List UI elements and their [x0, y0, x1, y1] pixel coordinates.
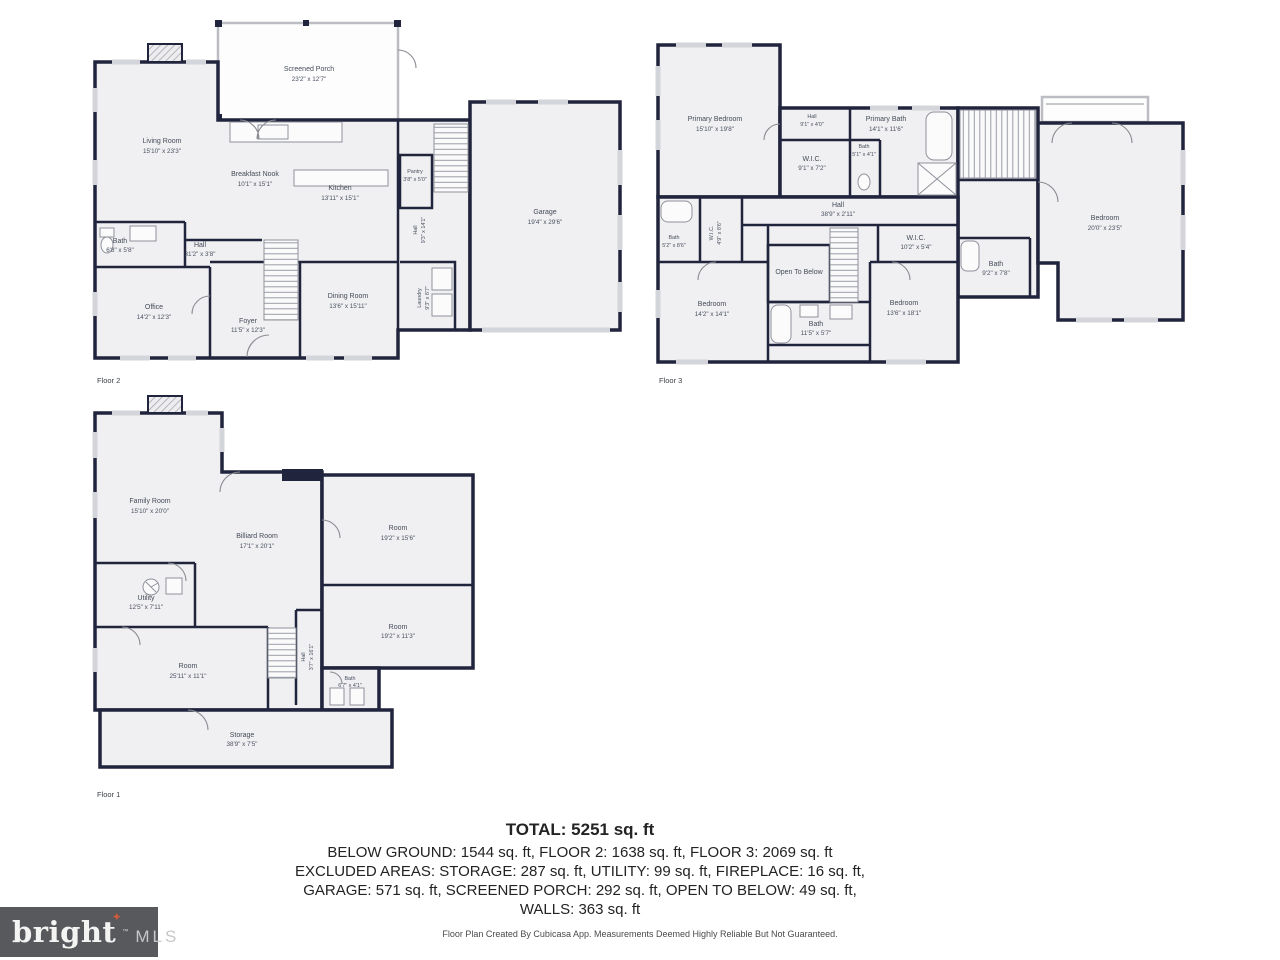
room-label-hall-floor1: Hall [301, 652, 307, 661]
room-dims-room-upper-right: 19'2" x 15'6" [381, 535, 416, 542]
room-label-utility: Utility [137, 595, 155, 602]
room-dims-pantry: 3'8" x 5'0" [403, 177, 427, 183]
sink-floor1 [350, 688, 364, 705]
room-label-bedroom-left: Bedroom [698, 301, 727, 308]
room-label-breakfast-nook: Breakfast Nook [231, 171, 279, 178]
room-label-bath-right: Bath [989, 261, 1004, 268]
logo-brand-text: bright✦ [12, 918, 116, 947]
room-label-hall-upper: Hall [807, 114, 816, 120]
room-dims-storage: 38'9" x 7'5" [226, 741, 257, 748]
room-label-living-room: Living Room [143, 138, 182, 145]
room-label-bedroom-middle: Bedroom [890, 300, 919, 307]
room-label-kitchen: Kitchen [328, 185, 351, 192]
wall-block [282, 469, 323, 481]
kitchen-island [294, 170, 388, 186]
floor2-label: Floor 2 [97, 376, 120, 385]
room-dims-bath-middle: 11'5" x 5'7" [801, 330, 832, 337]
room-label-bath-small: Bath [858, 144, 869, 150]
floorplan-canvas: Screened Porch 23'2" x 12'7" Living Room… [0, 0, 1280, 960]
garage-outline [470, 102, 620, 330]
room-label-primary-bath: Primary Bath [866, 116, 907, 123]
logo-trademark: ™ [122, 929, 128, 935]
floor1-plan: Family Room 15'10" x 20'0" Billiard Room… [95, 396, 473, 799]
room-dims-bath-floor1: 6'7" x 4'1" [338, 683, 362, 689]
room-dims-bath-left: 5'2" x 8'6" [662, 243, 686, 249]
room-label-wic-primary: W.I.C. [802, 156, 821, 163]
room-dims-hall-upper: 9'1" x 4'0" [800, 122, 824, 128]
room-label-family-room: Family Room [129, 498, 170, 505]
room-dims-hall-f2: 31'2" x 3'8" [184, 251, 215, 258]
floor1-label: Floor 1 [97, 790, 120, 799]
room-dims-kitchen: 13'11" x 15'1" [321, 195, 359, 202]
room-dims-utility: 12'5" x 7'11" [129, 604, 163, 611]
room-label-storage: Storage [230, 732, 255, 739]
room-dims-screened-porch: 23'2" x 12'7" [292, 76, 327, 83]
floorplan-sheet: Screened Porch 23'2" x 12'7" Living Room… [0, 0, 1280, 960]
room-label-wic-left: W.I.C. [709, 226, 715, 241]
floor2-plan: Screened Porch 23'2" x 12'7" Living Room… [95, 20, 620, 385]
stairs-upper [434, 124, 468, 192]
room-dims-bath-f2: 6'8" x 5'8" [106, 247, 134, 254]
room-label-wic-right: W.I.C. [906, 235, 925, 242]
room-dims-family-room: 15'10" x 20'0" [131, 508, 169, 515]
primary-tub [926, 112, 952, 160]
room-label-bath-middle: Bath [809, 321, 824, 328]
room-dims-bedroom-right: 20'0" x 23'5" [1088, 225, 1123, 232]
room-dims-wic-primary: 9'1" x 7'2" [798, 165, 826, 172]
room-label-foyer: Foyer [239, 318, 258, 325]
logo-mls-text: MLS [135, 927, 179, 947]
room-label-room-lower-right: Room [389, 624, 408, 631]
room-dims-bedroom-middle: 13'6" x 18'1" [887, 310, 922, 317]
vanity-bath-middle [830, 305, 852, 319]
tub-bath-right [961, 241, 979, 271]
washer [432, 268, 452, 290]
room-label-primary-bedroom: Primary Bedroom [688, 116, 743, 123]
room-label-room-upper-right: Room [389, 525, 408, 532]
room-dims-primary-bath: 14'1" x 11'6" [869, 126, 903, 133]
toilet-tank [100, 228, 114, 237]
room-dims-hall-side: 9'3" x 14'1" [421, 217, 427, 244]
fireplace [148, 44, 182, 62]
stairs-floor3 [960, 110, 1036, 178]
sink-bath-middle [800, 305, 818, 317]
room-label-hall-f2: Hall [194, 242, 207, 249]
stairs-floor3-mid [830, 228, 858, 302]
room-label-room-left: Room [179, 663, 198, 670]
room-label-bath-left: Bath [668, 235, 679, 241]
room-dims-wic-left: 4'9" x 8'6" [717, 221, 723, 245]
room-dims-foyer: 11'5" x 12'3" [231, 327, 265, 334]
room-dims-room-lower-right: 19'2" x 11'3" [381, 633, 415, 640]
room-dims-billiard-room: 17'1" x 20'1" [240, 543, 275, 550]
room-label-hall-side: Hall [413, 225, 419, 234]
room-dims-office: 14'2" x 12'3" [137, 314, 172, 321]
tub-bath-middle [771, 305, 791, 343]
tub-bath-left [661, 201, 692, 222]
room-label-laundry: Laundry [417, 288, 423, 308]
summary-line-excluded: EXCLUDED AREAS: STORAGE: 287 sq. ft, UTI… [280, 862, 880, 881]
room-dims-living-room: 15'10" x 23'3" [143, 148, 181, 155]
summary-line-garage: GARAGE: 571 sq. ft, SCREENED PORCH: 292 … [280, 881, 880, 900]
floor3-lower-outline [658, 197, 958, 362]
room-dims-primary-bedroom: 15'10" x 19'8" [696, 126, 734, 133]
fireplace-floor1 [148, 396, 182, 413]
summary-line-floors: BELOW GROUND: 1544 sq. ft, FLOOR 2: 1638… [280, 843, 880, 862]
floor3-label: Floor 3 [659, 376, 682, 385]
room-dims-garage: 19'4" x 29'6" [528, 219, 563, 226]
room-label-bedroom-right: Bedroom [1091, 215, 1120, 222]
room-label-garage: Garage [533, 209, 556, 216]
logo-star-icon: ✦ [112, 911, 123, 923]
room-label-open-to-below: Open To Below [775, 269, 823, 276]
dryer [432, 294, 452, 316]
disclaimer-text: Floor Plan Created By Cubicasa App. Meas… [320, 929, 960, 939]
toilet-floor1 [330, 688, 344, 705]
room-dims-bath-small: 5'1" x 4'1" [852, 152, 876, 158]
room-dims-hall-main: 38'9" x 2'11" [821, 211, 855, 218]
room-label-screened-porch: Screened Porch [284, 66, 334, 73]
summary-line-walls: WALLS: 363 sq. ft [280, 900, 880, 919]
room-label-office: Office [145, 304, 163, 311]
room-dims-room-left: 25'11" x 11'1" [169, 673, 206, 680]
sink [130, 226, 156, 241]
room-label-billiard-room: Billiard Room [236, 533, 278, 540]
stove [258, 125, 288, 139]
room-dims-dining: 13'6" x 15'11" [329, 303, 367, 310]
toilet-small-bath [858, 174, 870, 190]
room-dims-bath-right: 9'2" x 7'8" [982, 270, 1010, 277]
utility-unit [166, 578, 182, 594]
stairs-foyer [264, 240, 298, 320]
total-area: TOTAL: 5251 sq. ft [280, 820, 880, 840]
room-dims-wic-right: 10'2" x 5'4" [900, 244, 931, 251]
bright-mls-logo: bright✦ ™ MLS [0, 907, 158, 957]
room-label-hall-main: Hall [832, 202, 845, 209]
room-dims-laundry: 9'3" x 8'7" [425, 286, 431, 310]
dormer-strip [1042, 97, 1148, 122]
floor3-plan: Primary Bedroom 15'10" x 19'8" Hall 9'1"… [658, 45, 1183, 385]
room-label-bath-f2: Bath [113, 238, 128, 245]
room-label-dining: Dining Room [328, 293, 369, 300]
stairs-floor1 [268, 628, 296, 678]
room-label-pantry: Pantry [407, 169, 423, 175]
room-dims-bedroom-left: 14'2" x 14'1" [695, 311, 730, 318]
room-label-bath-floor1: Bath [344, 676, 355, 682]
room-dims-hall-floor1: 3'7" x 16'1" [309, 644, 315, 671]
area-summary: TOTAL: 5251 sq. ft BELOW GROUND: 1544 sq… [280, 820, 880, 919]
room-dims-breakfast-nook: 10'1" x 15'1" [238, 181, 273, 188]
